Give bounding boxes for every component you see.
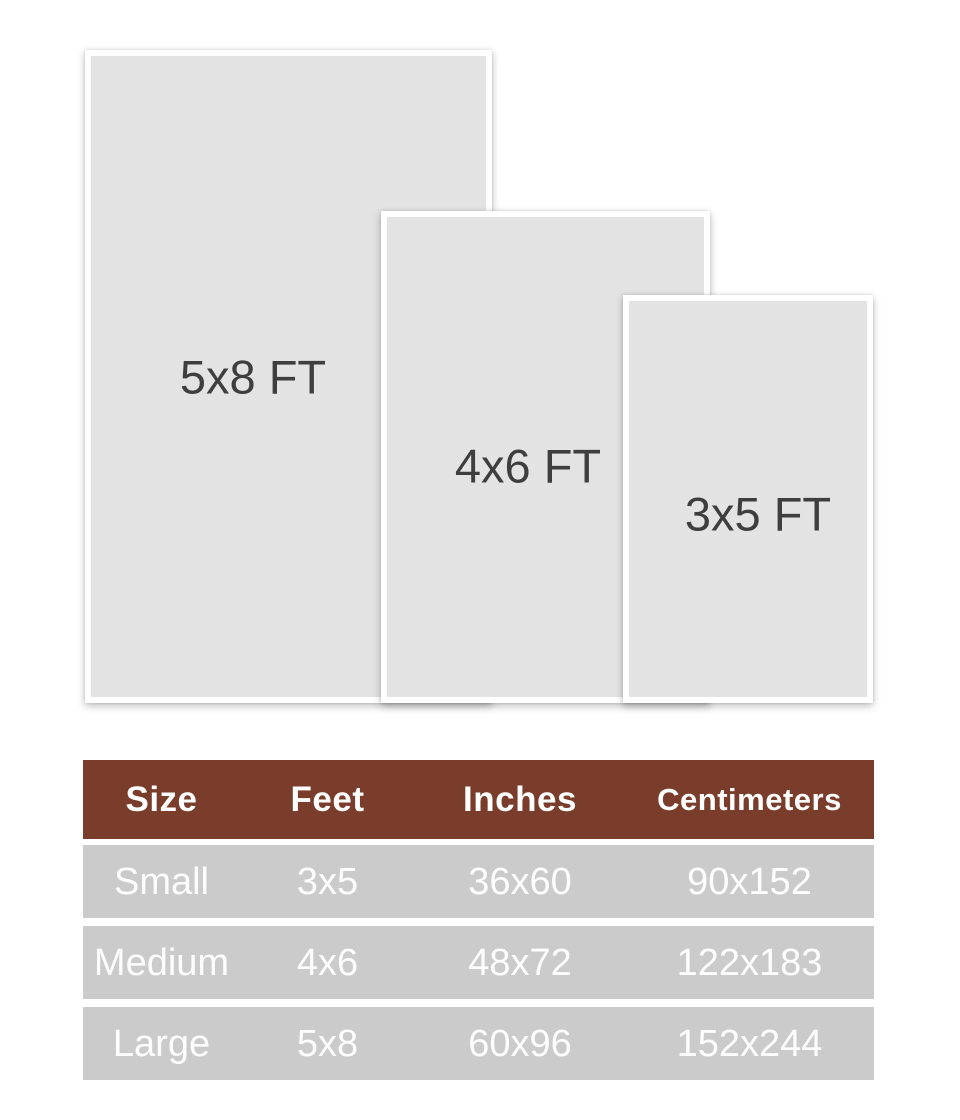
cell-feet-medium: 4x6 — [240, 944, 415, 982]
rug-label-4x6: 4x6 FT — [455, 439, 601, 494]
column-header-inches: Inches — [415, 782, 625, 817]
table-header-row: Size Feet Inches Centimeters — [83, 760, 874, 839]
cell-size-large: Large — [83, 1025, 240, 1063]
table-row-large: Large 5x8 60x96 152x244 — [83, 1007, 874, 1080]
cell-size-medium: Medium — [83, 944, 240, 982]
rug-label-3x5: 3x5 FT — [685, 487, 831, 542]
table-row-small: Small 3x5 36x60 90x152 — [83, 845, 874, 918]
cell-feet-large: 5x8 — [240, 1025, 415, 1063]
cell-inches-medium: 48x72 — [415, 944, 625, 982]
cell-inches-small: 36x60 — [415, 863, 625, 901]
size-table: Size Feet Inches Centimeters Small 3x5 3… — [83, 760, 874, 1080]
column-header-feet: Feet — [240, 782, 415, 817]
cell-centimeters-small: 90x152 — [625, 863, 874, 901]
cell-inches-large: 60x96 — [415, 1025, 625, 1063]
cell-size-small: Small — [83, 863, 240, 901]
cell-centimeters-large: 152x244 — [625, 1025, 874, 1063]
column-header-size: Size — [83, 782, 240, 817]
rug-label-5x8: 5x8 FT — [180, 350, 326, 405]
rug-size-chart: 5x8 FT 4x6 FT 3x5 FT Size Feet Inches Ce… — [0, 0, 960, 1120]
cell-feet-small: 3x5 — [240, 863, 415, 901]
cell-centimeters-medium: 122x183 — [625, 944, 874, 982]
column-header-centimeters: Centimeters — [625, 784, 874, 815]
table-row-medium: Medium 4x6 48x72 122x183 — [83, 926, 874, 999]
